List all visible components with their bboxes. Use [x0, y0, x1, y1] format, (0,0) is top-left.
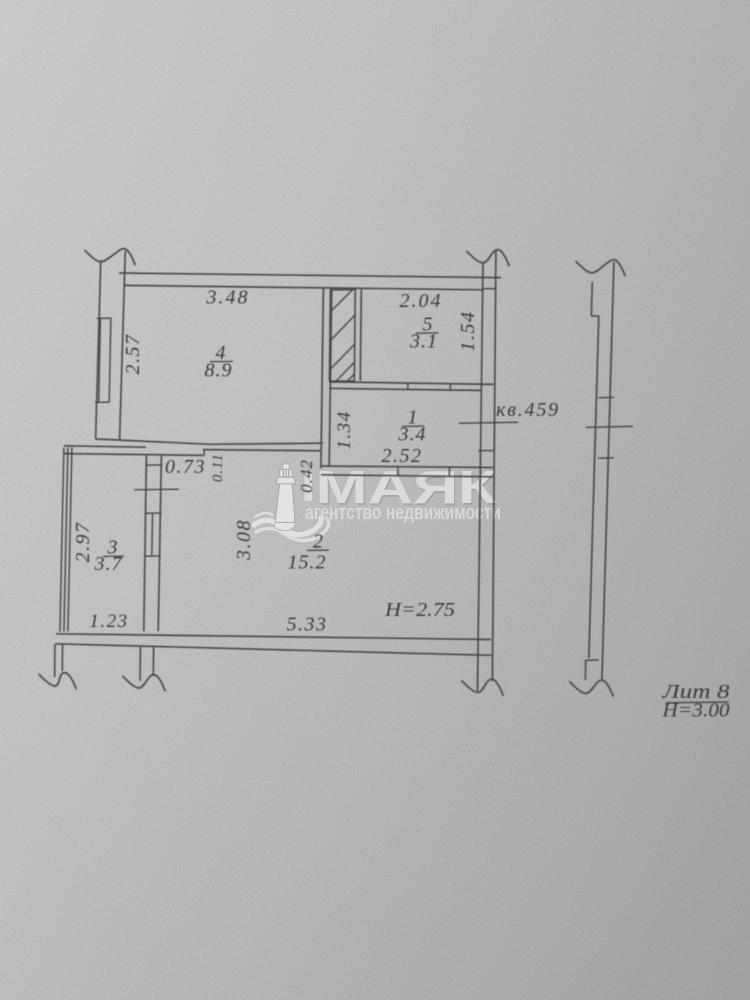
svg-text:2.04: 2.04	[400, 290, 443, 312]
svg-text:Н=3.00: Н=3.00	[661, 700, 729, 722]
svg-text:3.4: 3.4	[398, 424, 427, 446]
svg-text:1.54: 1.54	[457, 311, 479, 352]
svg-text:3.48: 3.48	[206, 287, 250, 309]
svg-text:Н=2.75: Н=2.75	[384, 599, 455, 621]
svg-text:3.1: 3.1	[409, 331, 438, 353]
svg-text:5.33: 5.33	[287, 614, 328, 636]
svg-text:2.97: 2.97	[72, 522, 94, 563]
svg-text:3.08: 3.08	[233, 519, 255, 561]
svg-text:3.7: 3.7	[94, 553, 123, 575]
svg-text:8.9: 8.9	[205, 360, 233, 382]
svg-text:15.2: 15.2	[288, 552, 327, 574]
svg-text:кв.459: кв.459	[496, 399, 560, 421]
svg-text:агентство недвижимости: агентство недвижимости	[305, 502, 501, 524]
svg-text:0.11: 0.11	[210, 453, 226, 482]
svg-text:2.57: 2.57	[122, 334, 144, 375]
svg-text:0.73: 0.73	[165, 456, 206, 478]
svg-text:2.52: 2.52	[382, 445, 423, 467]
svg-text:1.34: 1.34	[334, 410, 355, 449]
svg-text:2: 2	[313, 531, 323, 553]
svg-text:1.23: 1.23	[89, 611, 128, 632]
svg-text:0.42: 0.42	[297, 459, 316, 493]
